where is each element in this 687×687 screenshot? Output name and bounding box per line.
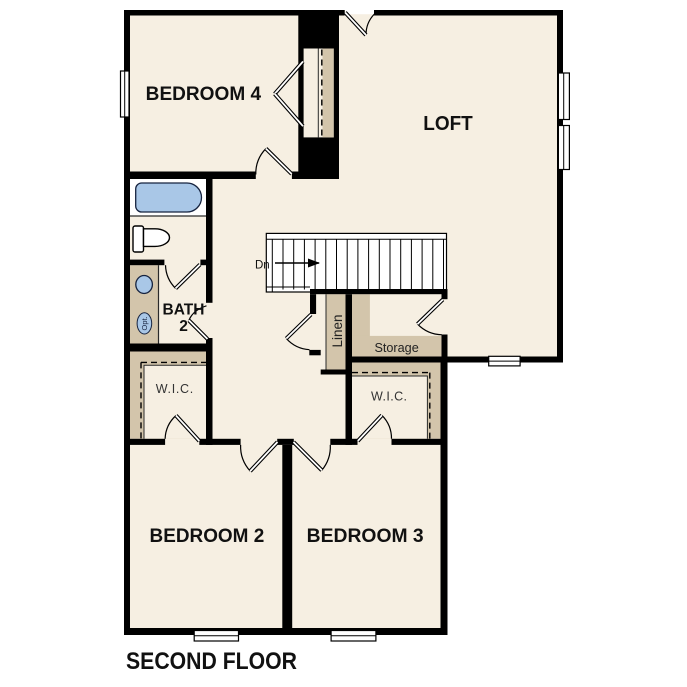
- svg-text:Dn: Dn: [255, 260, 270, 272]
- svg-text:Linen: Linen: [330, 314, 345, 347]
- svg-text:BEDROOM 3: BEDROOM 3: [307, 526, 424, 547]
- svg-text:W.I.C.: W.I.C.: [371, 390, 407, 404]
- svg-text:BATH: BATH: [163, 302, 205, 319]
- svg-text:Opt.: Opt.: [140, 316, 149, 330]
- svg-text:LOFT: LOFT: [423, 113, 473, 135]
- svg-text:2: 2: [179, 318, 188, 335]
- svg-text:SECOND FLOOR: SECOND FLOOR: [126, 648, 297, 675]
- svg-text:BEDROOM 2: BEDROOM 2: [150, 526, 265, 547]
- svg-text:W.I.C.: W.I.C.: [156, 382, 194, 396]
- svg-text:Storage: Storage: [374, 340, 418, 355]
- svg-text:BEDROOM 4: BEDROOM 4: [146, 84, 262, 105]
